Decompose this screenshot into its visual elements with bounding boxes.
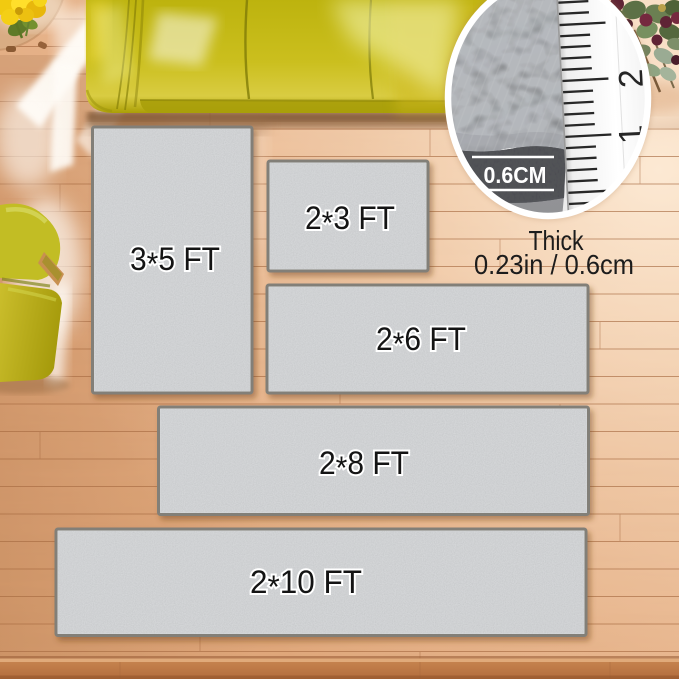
svg-text:2*6 FT: 2*6 FT xyxy=(376,321,466,362)
svg-text:0.6CM: 0.6CM xyxy=(484,162,547,188)
svg-text:3*5 FT: 3*5 FT xyxy=(130,241,220,282)
svg-text:2*3 FT: 2*3 FT xyxy=(305,200,395,241)
svg-text:2*10 FT: 2*10 FT xyxy=(250,564,362,605)
svg-text:2*8 FT: 2*8 FT xyxy=(319,445,409,486)
svg-text:0.23in / 0.6cm: 0.23in / 0.6cm xyxy=(474,249,634,280)
